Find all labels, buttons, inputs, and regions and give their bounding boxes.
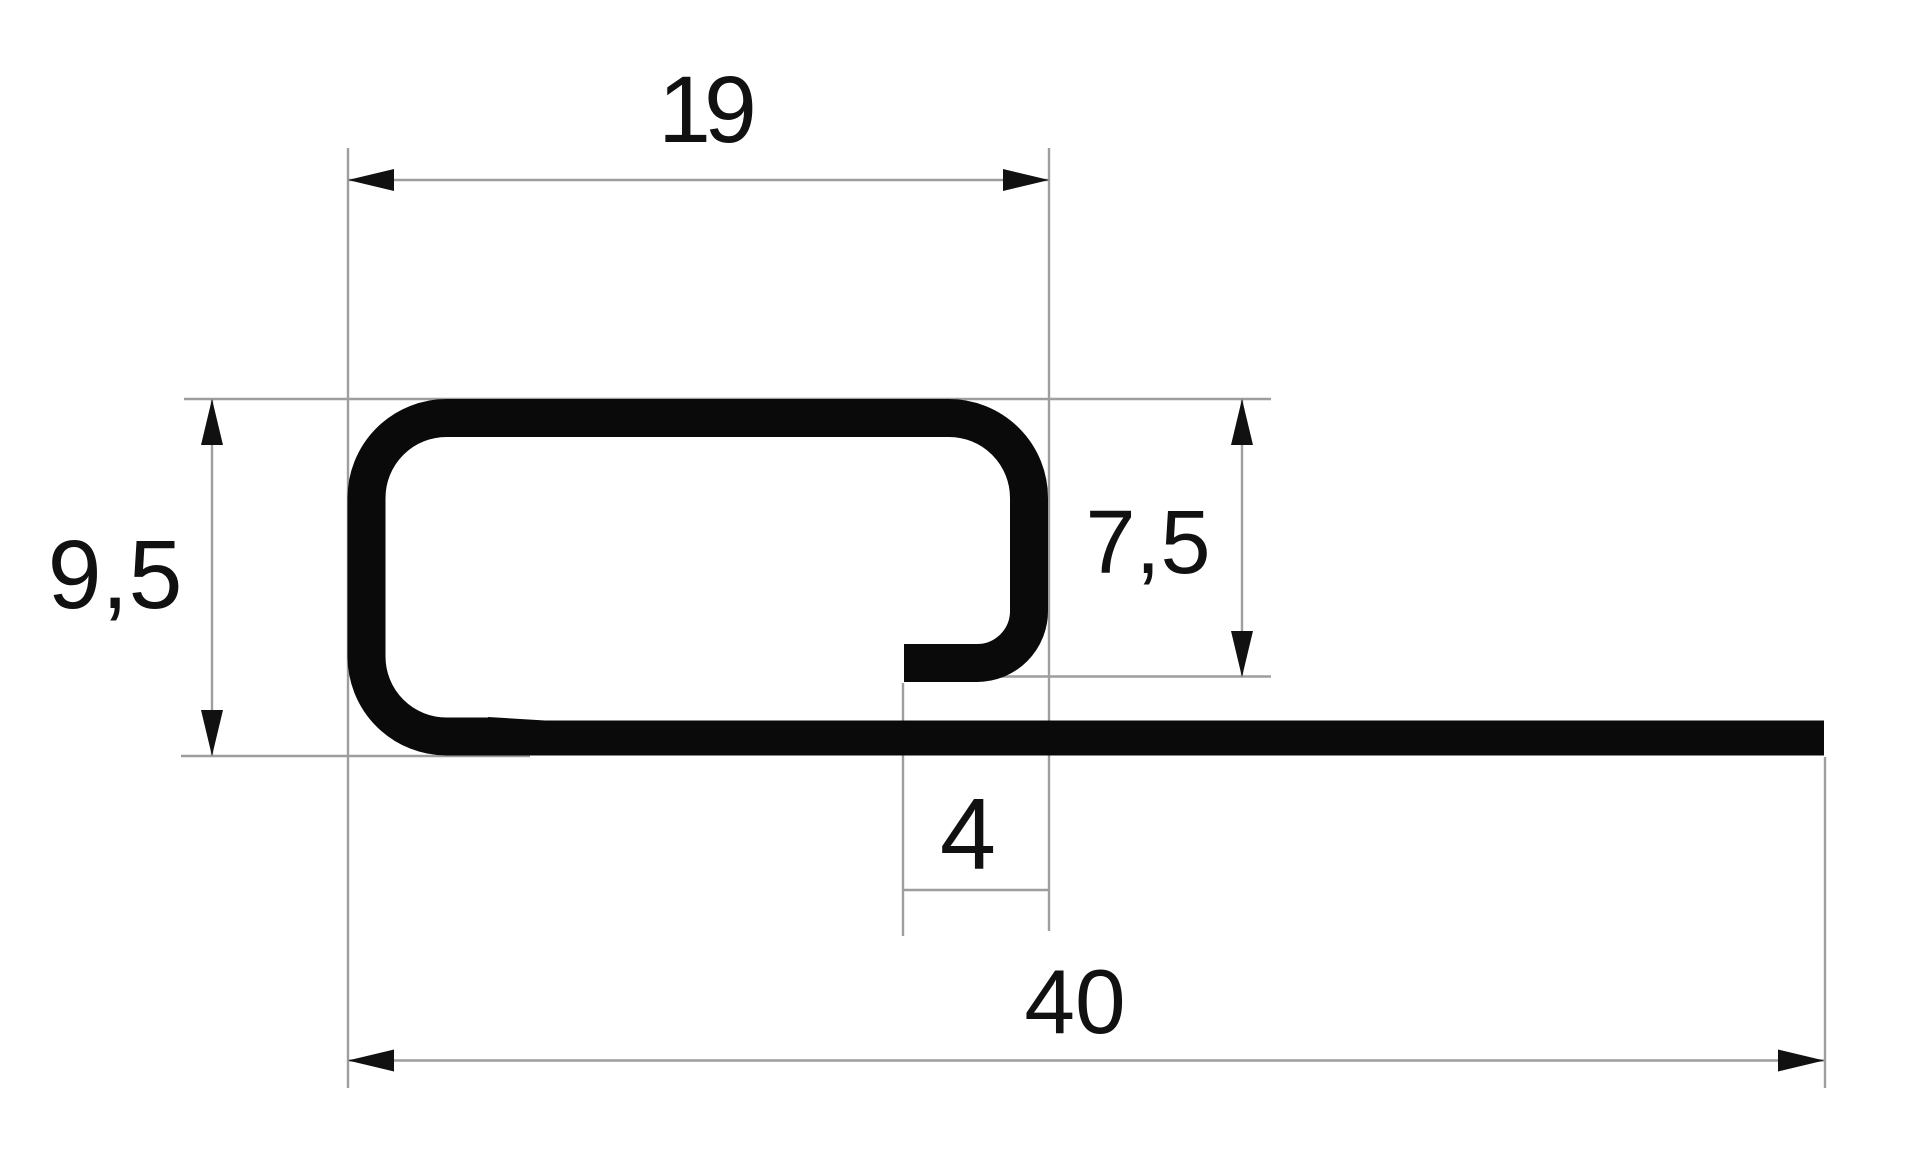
svg-text:4: 4: [940, 779, 996, 891]
svg-text:40: 40: [1024, 952, 1125, 1053]
svg-text:19: 19: [658, 57, 753, 163]
svg-text:7,5: 7,5: [1085, 493, 1210, 593]
svg-text:9,5: 9,5: [48, 520, 183, 629]
